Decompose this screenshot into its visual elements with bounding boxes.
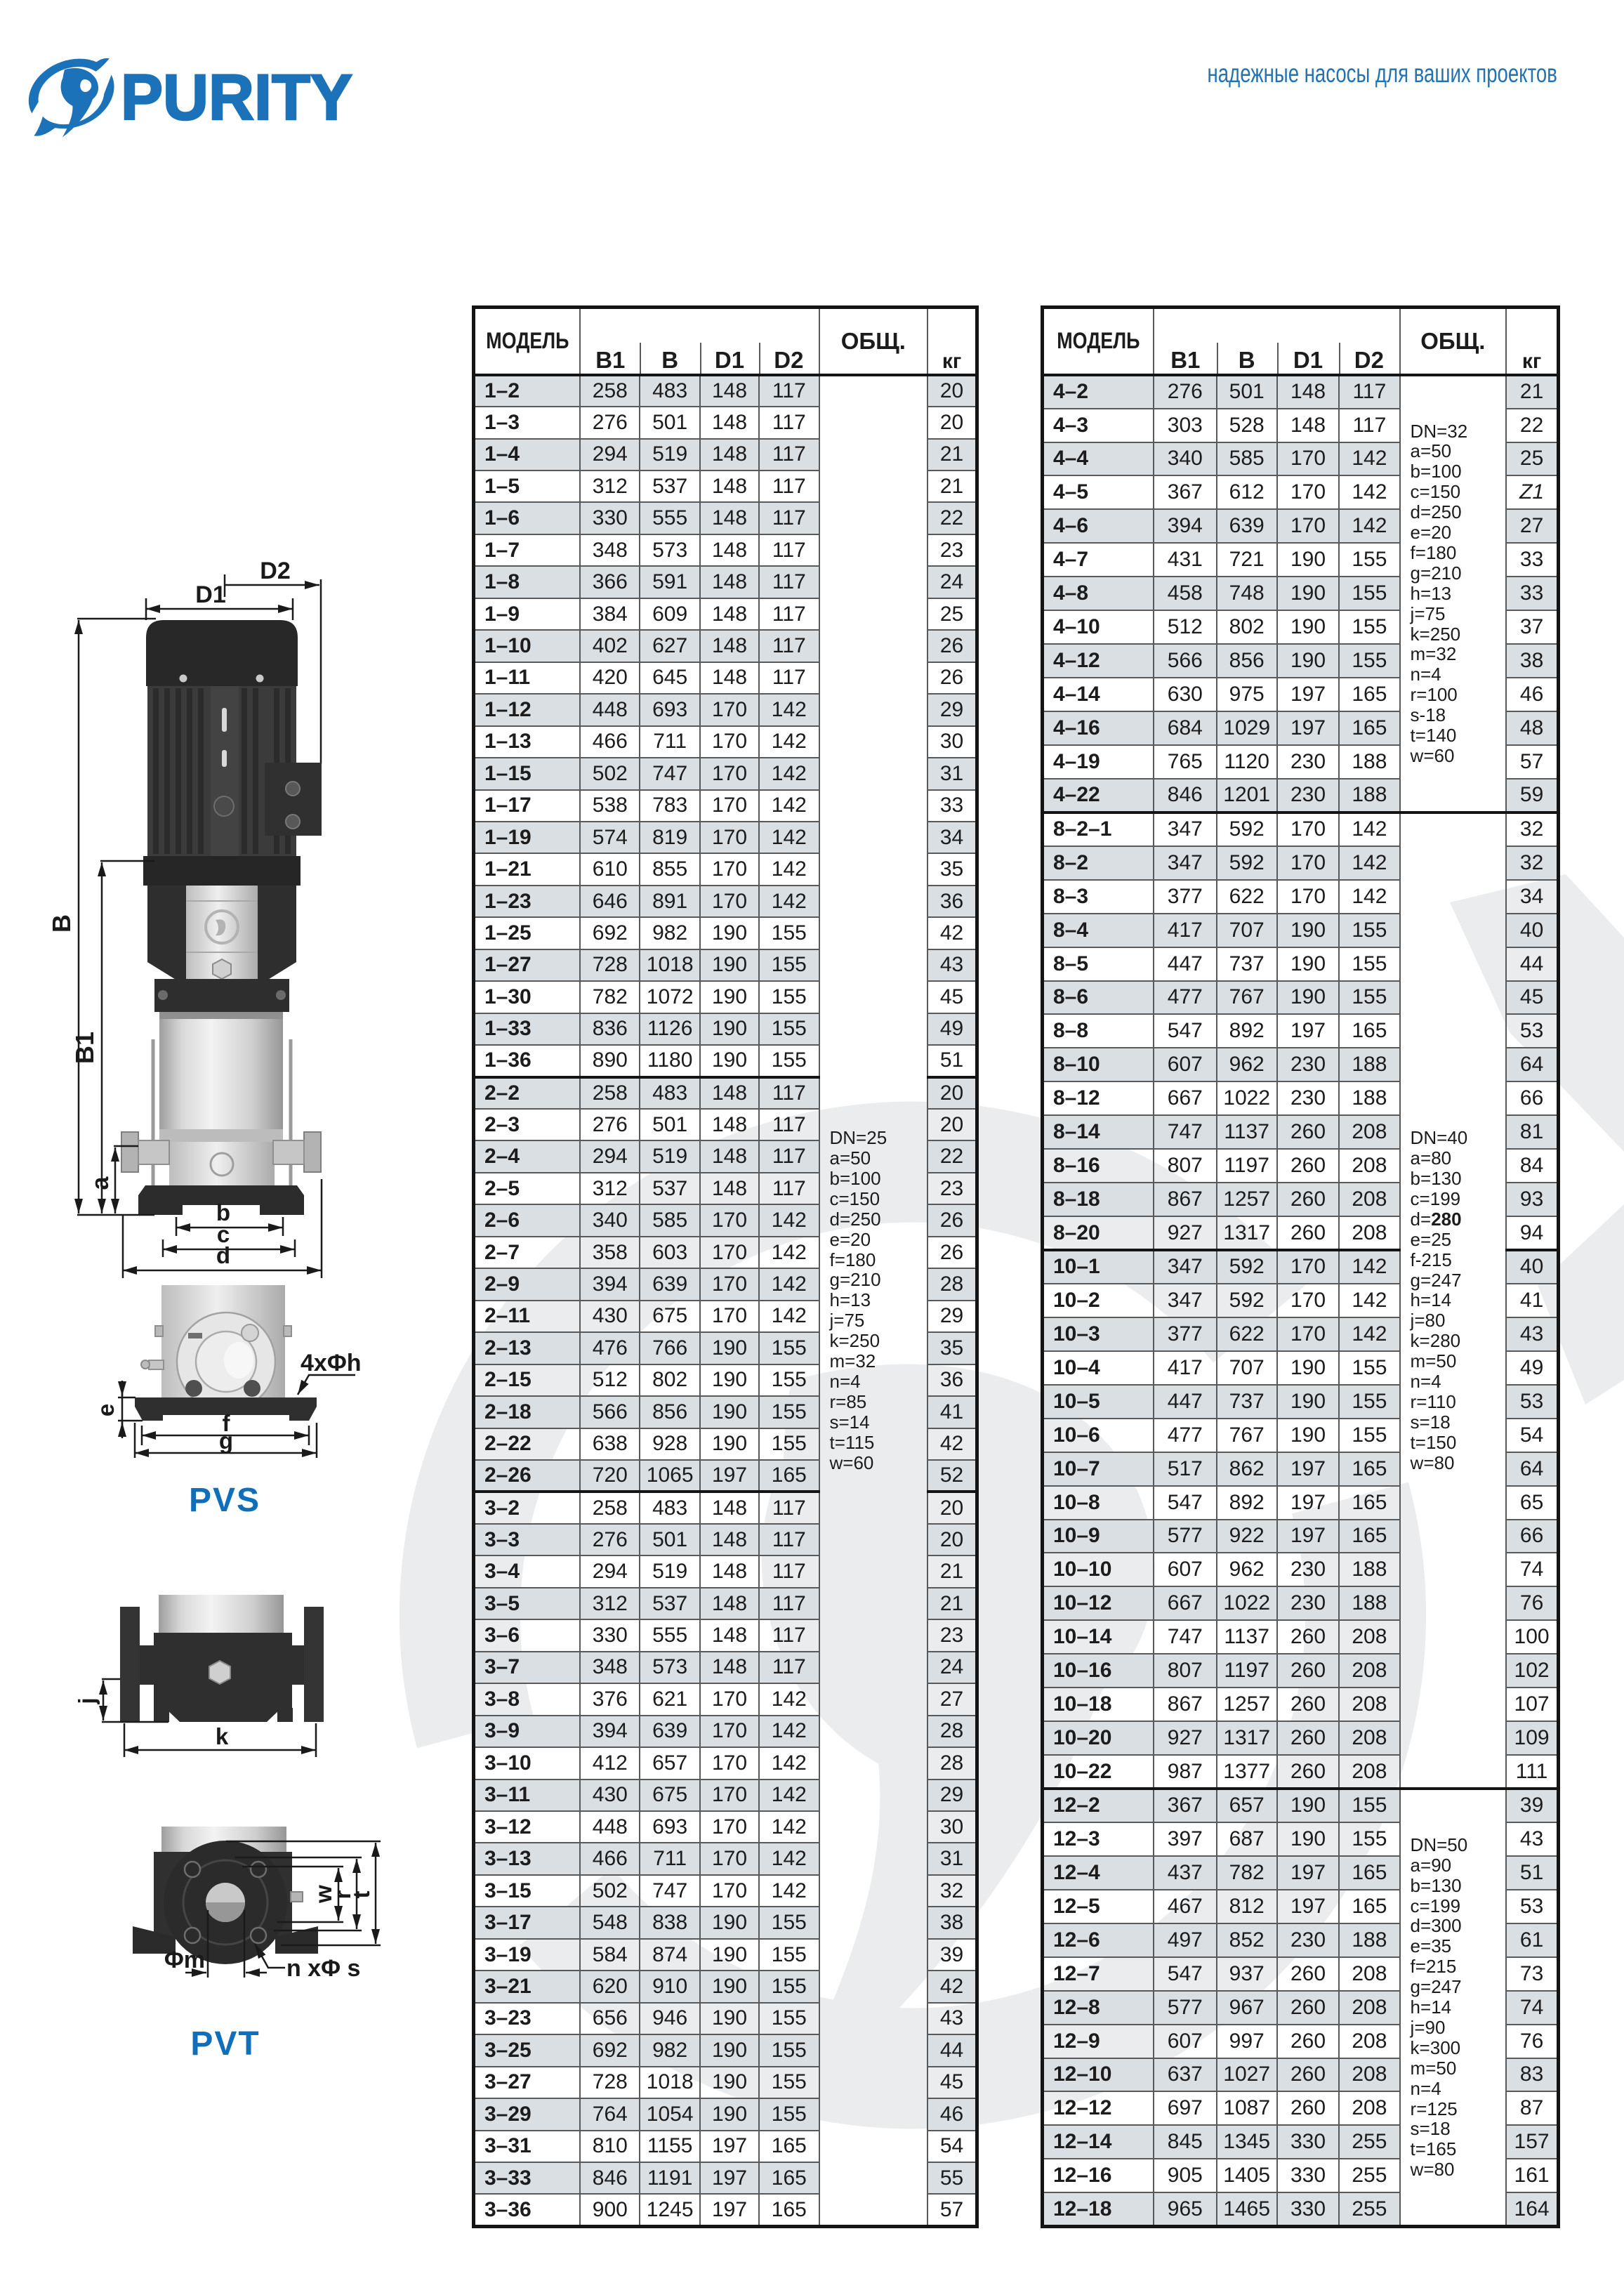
svg-text:g: g [219, 1428, 233, 1454]
svg-text:n xΦ s: n xΦ s [286, 1955, 360, 1982]
svg-text:a: a [87, 1176, 114, 1190]
svg-text:Φm: Φm [164, 1947, 205, 1973]
svg-text:B: B [47, 914, 76, 933]
svg-text:w: w [310, 1885, 336, 1904]
svg-text:PVT: PVT [190, 2025, 260, 2063]
svg-text:B1: B1 [70, 1032, 99, 1064]
svg-text:j: j [74, 1697, 100, 1704]
svg-text:D2: D2 [260, 558, 290, 584]
svg-text:PVS: PVS [189, 1482, 260, 1519]
svg-text:D1: D1 [195, 581, 225, 608]
svg-text:d: d [216, 1242, 230, 1268]
svg-text:PURITY: PURITY [121, 62, 352, 133]
svg-text:e: e [93, 1404, 119, 1416]
svg-text:k: k [216, 1723, 229, 1749]
svg-text:4xΦh: 4xΦh [301, 1350, 362, 1376]
